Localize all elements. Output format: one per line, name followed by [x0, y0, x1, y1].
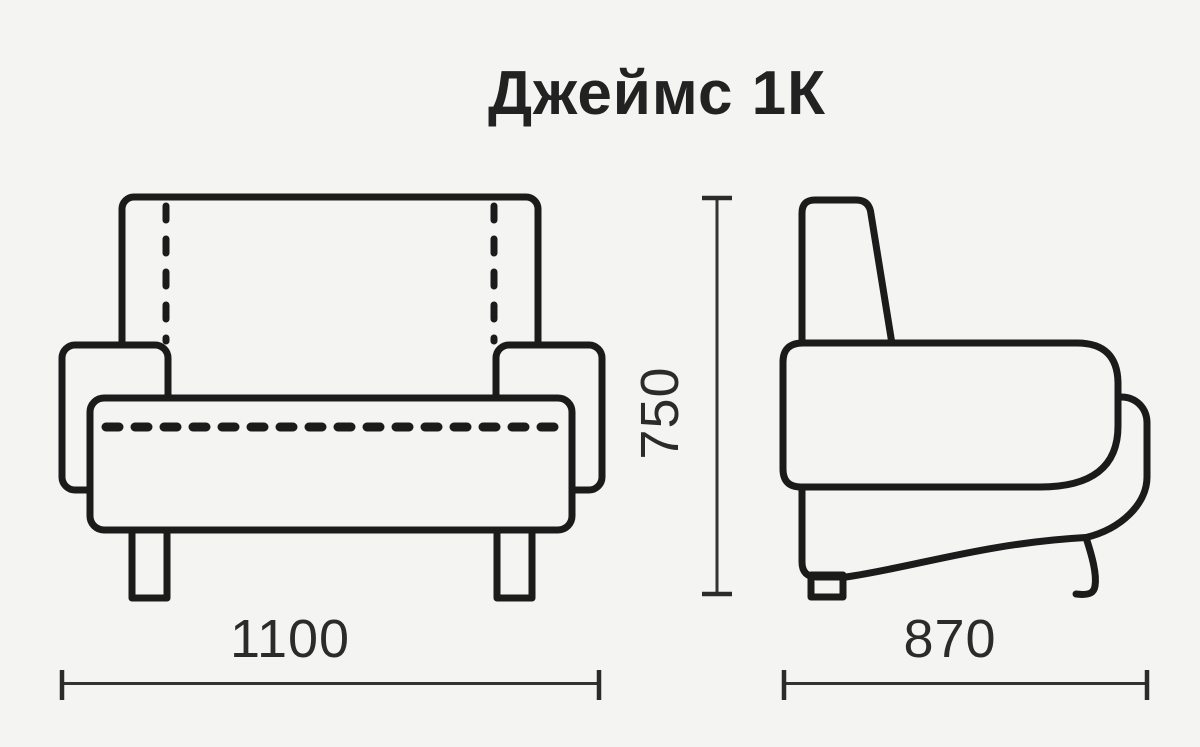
width-dimension: 1100 [62, 609, 599, 700]
depth-dimension: 870 [784, 609, 1147, 700]
height-dimension: 750 [630, 198, 732, 594]
front-backrest-outline [122, 197, 538, 415]
depth-dimension-label: 870 [903, 609, 996, 669]
height-dimension-label: 750 [630, 366, 690, 459]
side-backrest-outline [802, 200, 893, 350]
front-seat-outline [90, 398, 572, 530]
furniture-dimension-diagram: 1100 750 870 [0, 0, 1200, 747]
side-base-outline [802, 480, 1086, 577]
side-leg-rear [1076, 538, 1095, 595]
width-dimension-label: 1100 [230, 609, 350, 669]
front-view [62, 197, 602, 598]
technical-drawing-page: Джеймс 1К [0, 0, 1200, 747]
side-armrest-outline [783, 343, 1118, 487]
side-view [783, 200, 1147, 597]
